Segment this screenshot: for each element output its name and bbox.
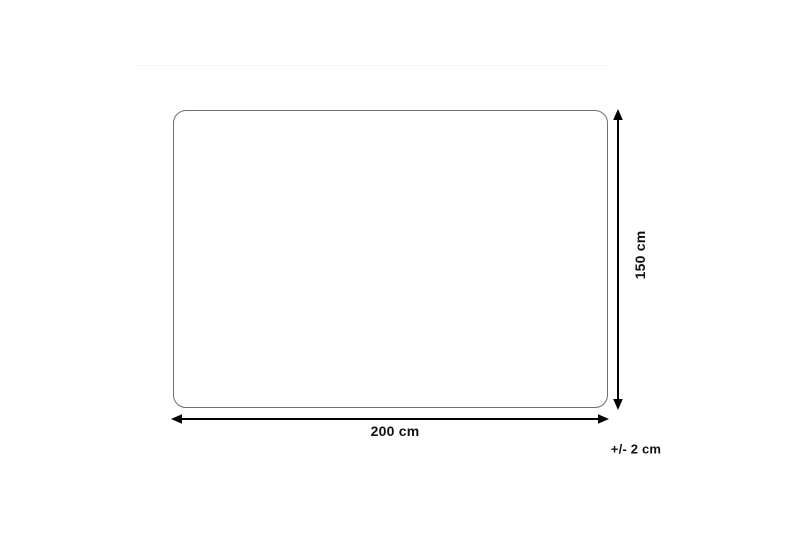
width-label: 200 cm bbox=[371, 423, 420, 439]
height-label: 150 cm bbox=[632, 231, 648, 280]
dimension-diagram: 200 cm 150 cm +/- 2 cm bbox=[0, 0, 800, 533]
faint-divider-line bbox=[136, 65, 608, 66]
product-outline-rect bbox=[173, 110, 608, 408]
tolerance-label: +/- 2 cm bbox=[611, 442, 661, 457]
height-dimension-arrow bbox=[610, 108, 626, 411]
